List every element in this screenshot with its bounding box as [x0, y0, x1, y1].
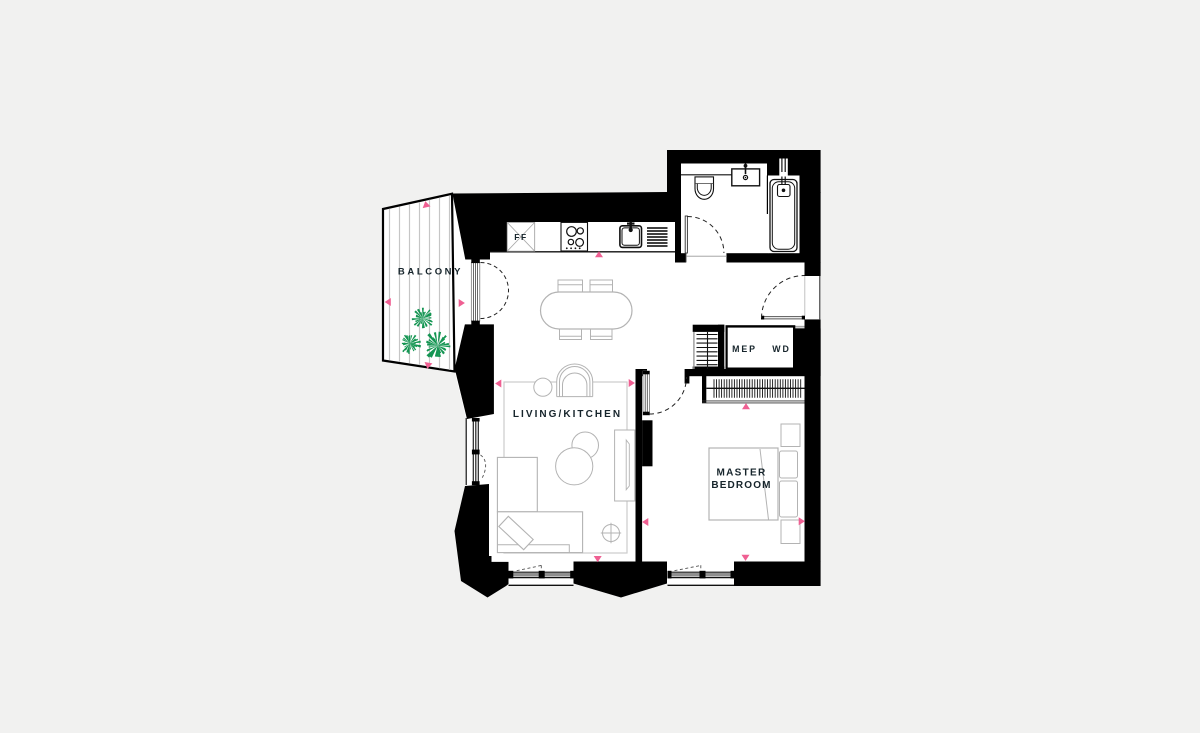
svg-text:MEP: MEP [732, 344, 757, 354]
svg-text:FF: FF [514, 232, 527, 242]
svg-text:BEDROOM: BEDROOM [711, 480, 771, 491]
svg-text:BALCONY: BALCONY [398, 267, 463, 278]
svg-text:WD: WD [772, 344, 790, 354]
svg-text:MASTER: MASTER [716, 468, 766, 479]
svg-text:LIVING/KITCHEN: LIVING/KITCHEN [513, 409, 622, 420]
